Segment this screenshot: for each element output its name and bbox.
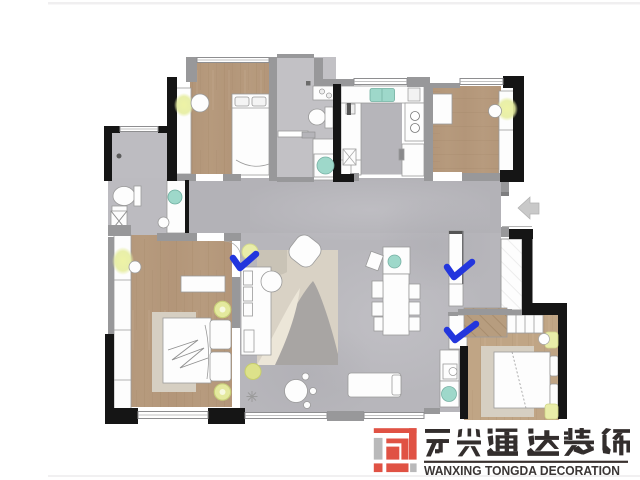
svg-text:WANXING TONGDA DECORATION: WANXING TONGDA DECORATION bbox=[424, 463, 620, 478]
